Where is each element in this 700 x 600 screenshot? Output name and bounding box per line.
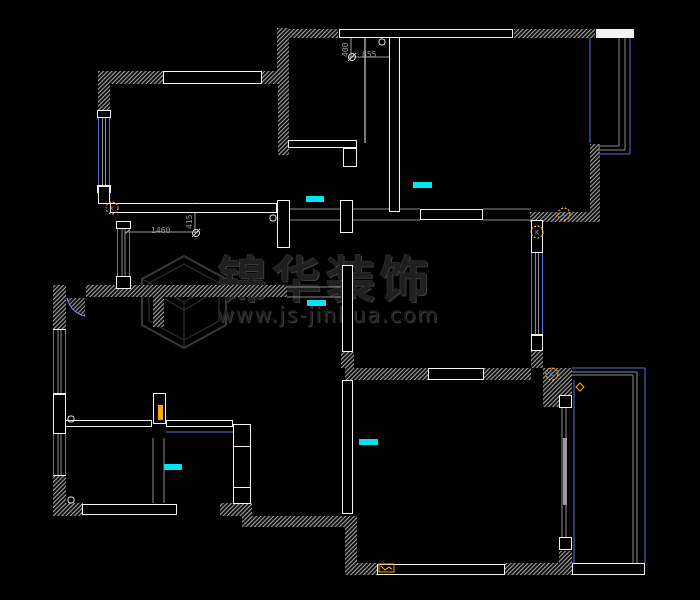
hatch-wall xyxy=(98,71,163,84)
floorplan-canvas: KKKK1460415855400 xyxy=(0,0,700,600)
cyan-marker xyxy=(359,439,378,445)
cyan-marker xyxy=(164,464,182,470)
door-leaf xyxy=(158,405,163,420)
hatch-wall xyxy=(153,297,164,327)
dimension-label: 400 xyxy=(341,42,350,57)
wall-segment xyxy=(343,381,353,514)
dimension-label: 855 xyxy=(362,50,377,59)
door-swing-wedge xyxy=(67,298,85,316)
wall-segment xyxy=(54,395,66,434)
wall-segment xyxy=(343,266,353,352)
wall-segment xyxy=(66,421,152,427)
hatch-wall xyxy=(53,503,83,516)
wall-sill xyxy=(596,29,634,38)
wall-segment xyxy=(341,201,353,233)
cyan-marker xyxy=(413,182,432,188)
wall-segment xyxy=(560,396,572,408)
hatch-wall xyxy=(220,503,252,516)
hatch-wall xyxy=(242,516,357,527)
dimension-label: 415 xyxy=(185,214,194,229)
wall-segment xyxy=(560,538,572,550)
hatch-wall xyxy=(280,29,338,38)
sliding-door-leaf xyxy=(563,438,567,505)
reference-circle xyxy=(270,215,276,221)
hatch-wall xyxy=(162,285,287,297)
cyan-marker xyxy=(307,300,326,306)
hatch-wall xyxy=(341,352,354,368)
diamond-marker xyxy=(576,383,584,391)
reference-circle xyxy=(379,39,385,45)
wall-segment xyxy=(234,425,251,447)
wall-segment xyxy=(98,111,111,118)
hatch-wall xyxy=(345,563,377,575)
wall-segment xyxy=(111,204,277,213)
hatch-wall xyxy=(484,368,531,380)
wall-segment xyxy=(289,141,357,148)
hatch-wall xyxy=(514,29,595,38)
wall-segment xyxy=(117,277,131,289)
wall-segment xyxy=(164,72,262,84)
wall-segment xyxy=(573,564,645,575)
dimension-label: 1460 xyxy=(151,226,170,235)
wall-segment xyxy=(378,565,505,575)
hatch-wall xyxy=(345,368,428,380)
wall-segment xyxy=(429,369,484,380)
wall-segment xyxy=(278,201,290,248)
cyan-marker xyxy=(306,196,324,202)
hatch-wall xyxy=(531,350,543,368)
wall-segment xyxy=(532,336,543,351)
wall-segment xyxy=(99,187,110,204)
hatch-wall xyxy=(53,285,66,329)
reference-circle xyxy=(68,497,74,503)
wall-segment xyxy=(234,488,251,504)
wall-segment xyxy=(117,222,131,229)
wall-segment xyxy=(340,30,513,38)
floorplan-screenshot: 锦华装饰 www.js-jinhua.com KKKK1460415855400 xyxy=(0,0,700,600)
wall-segment xyxy=(83,505,177,515)
hatch-wall xyxy=(559,551,572,575)
hatch-wall xyxy=(278,80,289,155)
wall-segment xyxy=(421,210,483,220)
wall-segment xyxy=(344,149,357,167)
wall-segment xyxy=(390,38,400,212)
wall-segment xyxy=(234,447,251,488)
wall-segment xyxy=(167,421,233,427)
